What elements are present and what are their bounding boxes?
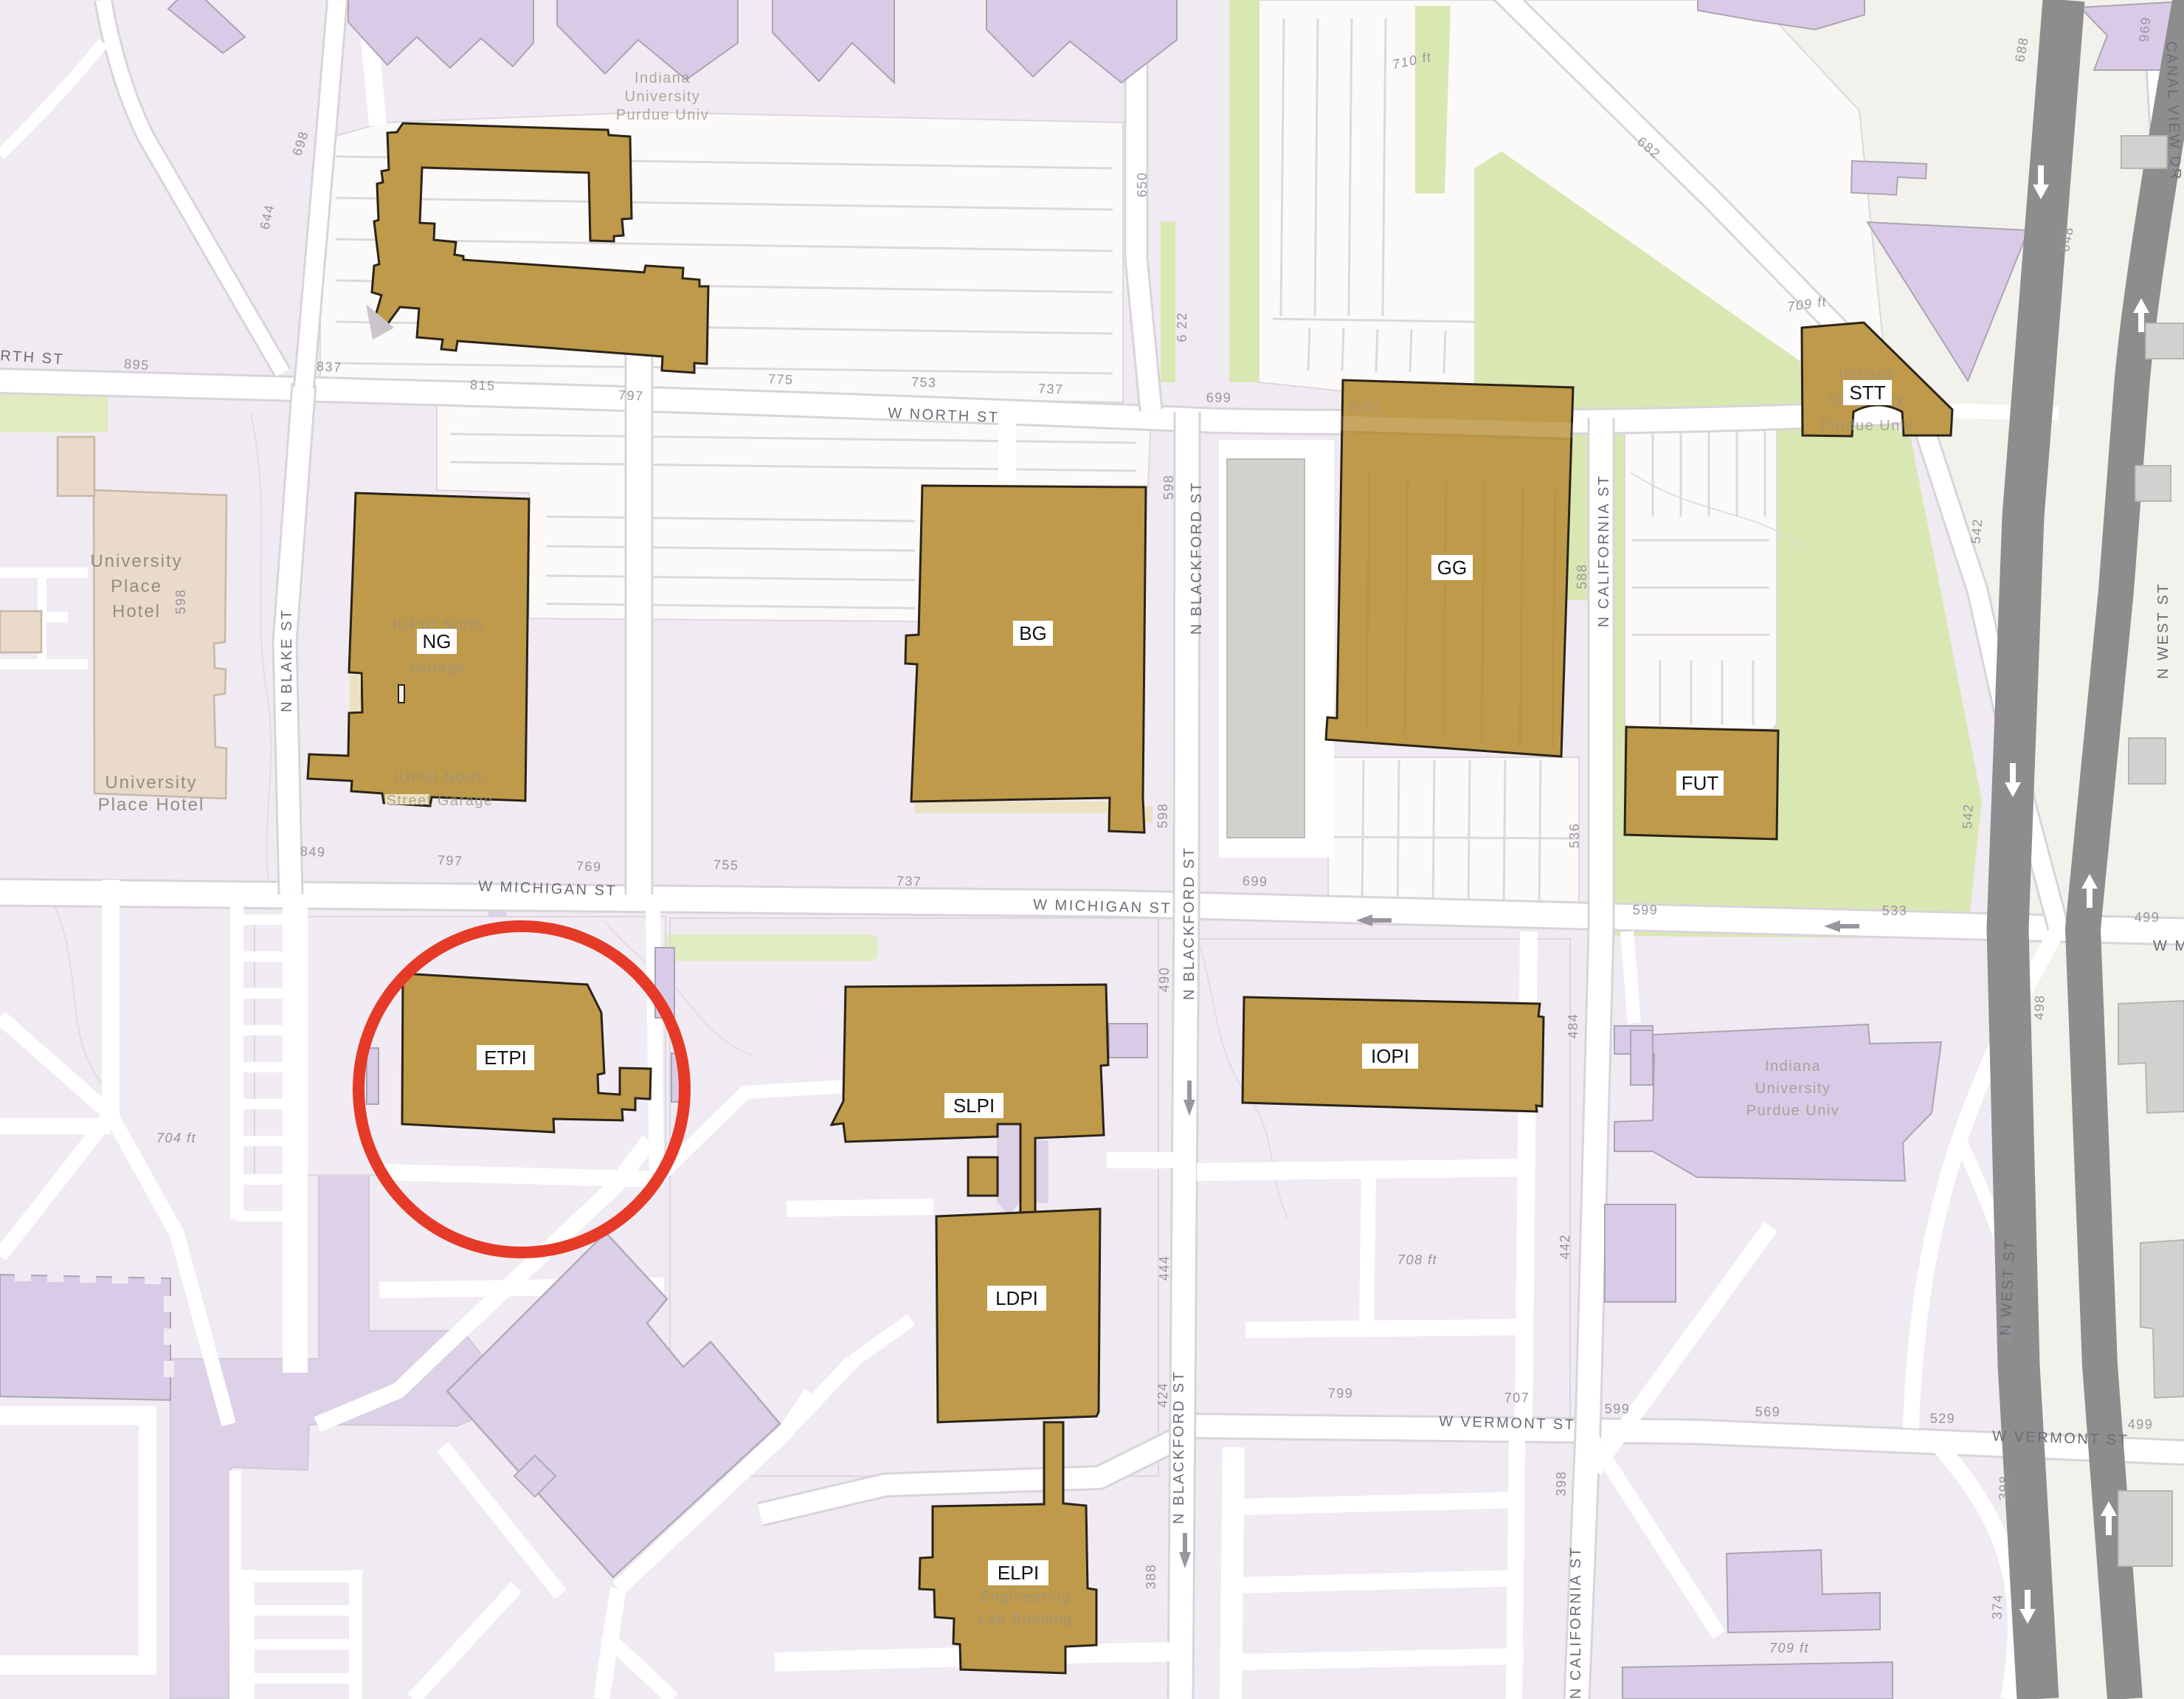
svg-text:708 ft: 708 ft [1397,1252,1437,1267]
svg-text:Indiana: Indiana [1839,366,1895,382]
svg-text:709 ft: 709 ft [1769,1641,1809,1655]
svg-text:837: 837 [317,359,343,375]
svg-text:529: 529 [1930,1411,1956,1426]
svg-text:Hotel: Hotel [112,602,161,621]
svg-text:STT: STT [1849,382,1885,404]
svg-text:N BLACKFORD ST: N BLACKFORD ST [1171,1371,1187,1524]
svg-text:699: 699 [1243,873,1268,889]
svg-text:Lab Building: Lab Building [978,1611,1073,1627]
svg-text:FUT: FUT [1682,772,1719,794]
svg-text:398: 398 [1996,1475,2011,1500]
svg-text:Place Hotel: Place Hotel [98,795,205,815]
svg-text:707: 707 [1504,1390,1530,1405]
svg-text:598: 598 [1161,475,1176,500]
svg-text:704 ft: 704 ft [156,1131,196,1145]
svg-text:SLPI: SLPI [953,1095,995,1117]
svg-text:628: 628 [2164,146,2181,173]
svg-text:775: 775 [768,371,794,387]
svg-text:N BLACKFORD ST: N BLACKFORD ST [1181,847,1198,1000]
svg-text:398: 398 [1554,1471,1569,1497]
svg-text:737: 737 [1038,381,1064,396]
svg-text:Engineering: Engineering [980,1589,1071,1605]
svg-text:ETPI: ETPI [484,1047,527,1069]
svg-text:418: 418 [2000,1315,2015,1341]
svg-text:442: 442 [1558,1234,1572,1260]
svg-text:444: 444 [1157,1255,1172,1281]
svg-text:815: 815 [470,377,497,393]
svg-text:Indiana: Indiana [1765,1058,1821,1075]
svg-text:699: 699 [1206,390,1232,405]
svg-text:599: 599 [1633,903,1659,917]
svg-text:GG: GG [1437,556,1467,579]
svg-text:499: 499 [2128,1417,2154,1432]
svg-text:IOPI: IOPI [1371,1045,1409,1067]
svg-text:533: 533 [1882,903,1908,918]
svg-text:588: 588 [1575,564,1589,590]
svg-text:BG: BG [1019,622,1047,644]
svg-text:Purdue Univ: Purdue Univ [1746,1103,1840,1119]
svg-text:Garage: Garage [410,660,466,676]
svg-text:424: 424 [1155,1382,1170,1408]
svg-text:598: 598 [173,589,188,615]
svg-text:542: 542 [1969,517,1986,544]
svg-text:650: 650 [1135,172,1150,198]
svg-text:Place: Place [111,576,162,596]
svg-text:490: 490 [1157,967,1172,993]
svg-text:499: 499 [2135,910,2160,925]
svg-text:N CALIFORNIA ST: N CALIFORNIA ST [1596,474,1612,627]
svg-text:484: 484 [1566,1013,1580,1039]
svg-text:598: 598 [1155,803,1170,829]
svg-text:6 22: 6 22 [1175,311,1189,342]
svg-text:University: University [90,551,182,571]
svg-text:IUPUI North: IUPUI North [394,770,485,786]
svg-text:LDPI: LDPI [995,1287,1038,1309]
svg-text:849: 849 [300,844,326,859]
svg-text:542: 542 [1960,803,1976,830]
svg-text:769: 769 [576,858,602,874]
svg-text:753: 753 [911,374,937,390]
svg-text:374: 374 [1989,1593,2005,1619]
svg-text:895: 895 [123,356,150,373]
svg-text:498: 498 [2031,994,2047,1020]
svg-text:799: 799 [1328,1386,1354,1401]
svg-text:755: 755 [713,857,739,872]
svg-text:N BLACKFORD ST: N BLACKFORD ST [1189,481,1205,635]
svg-text:Purdue Univ: Purdue Univ [1820,418,1914,434]
svg-text:797: 797 [618,387,645,404]
svg-text:536: 536 [1567,823,1582,849]
svg-text:ELPI: ELPI [998,1562,1039,1584]
svg-text:University: University [105,773,197,793]
svg-text:969: 969 [2137,15,2154,42]
svg-text:737: 737 [896,873,922,889]
svg-text:N CALIFORNIA ST: N CALIFORNIA ST [1568,1545,1584,1699]
svg-text:6 53: 6 53 [1350,400,1380,415]
svg-text:569: 569 [1755,1405,1781,1419]
svg-text:N WEST ST: N WEST ST [2155,582,2171,679]
svg-text:599: 599 [1605,1402,1631,1416]
svg-text:University: University [1755,1081,1831,1097]
svg-text:University: University [625,89,701,105]
svg-text:W M: W M [2153,938,2184,954]
svg-text:Indiana: Indiana [635,70,691,86]
svg-text:388: 388 [1144,1564,1158,1590]
svg-text:NG: NG [423,630,452,652]
svg-text:Purdue Univ: Purdue Univ [616,107,710,123]
svg-text:Street Garage: Street Garage [386,793,493,809]
svg-text:797: 797 [438,852,463,868]
svg-text:N BLAKE ST: N BLAKE ST [279,608,295,712]
